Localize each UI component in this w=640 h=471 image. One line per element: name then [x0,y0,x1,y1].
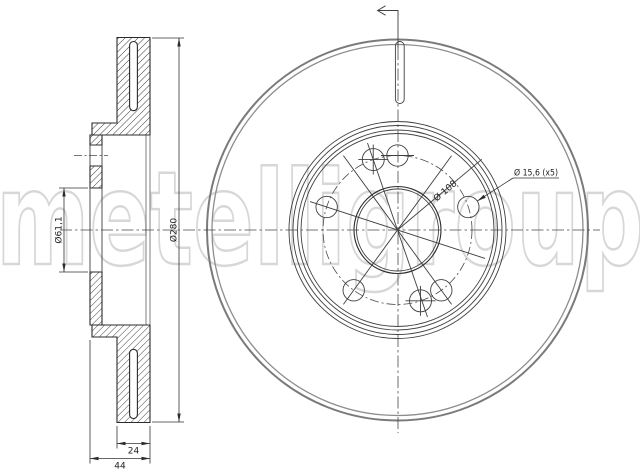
vent-slot [395,41,404,103]
section-hat-wall-upper [90,135,102,145]
brake-disc-technical-drawing: metelligroup Ø280 [0,0,640,471]
dim-friction-thickness-label: 24 [128,447,140,457]
dim-total-height-label: 44 [114,462,126,471]
section-hat-wall-lower [90,272,102,325]
section-bottom-friction-ring [92,325,150,423]
dim-bolt-hole-label: Ø 15,6 (x5) [514,168,558,179]
section-top-friction-ring [92,38,150,136]
section-hat-wall-mid [90,166,102,188]
drawing-canvas: metelligroup Ø280 [0,0,640,471]
section-plane-arrow [378,6,399,48]
